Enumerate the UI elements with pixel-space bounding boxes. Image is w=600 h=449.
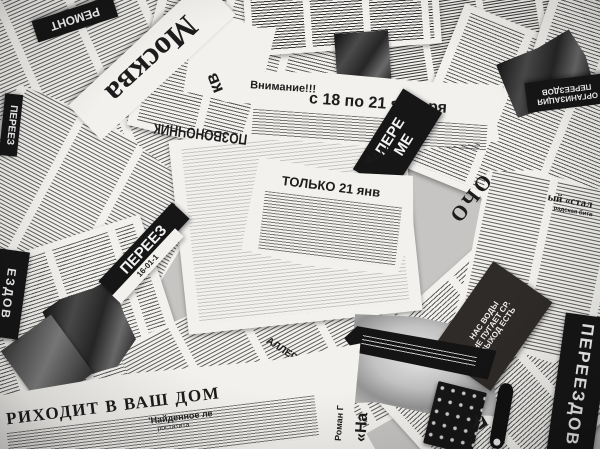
na-vertical-text: «На <box>346 397 378 449</box>
na-vertical: «На <box>346 397 378 449</box>
newspaper-collage-photo: МоскваквРЕМОНТПЕРЕЕЗВнимание!!!с 18 по 2… <box>0 0 600 449</box>
